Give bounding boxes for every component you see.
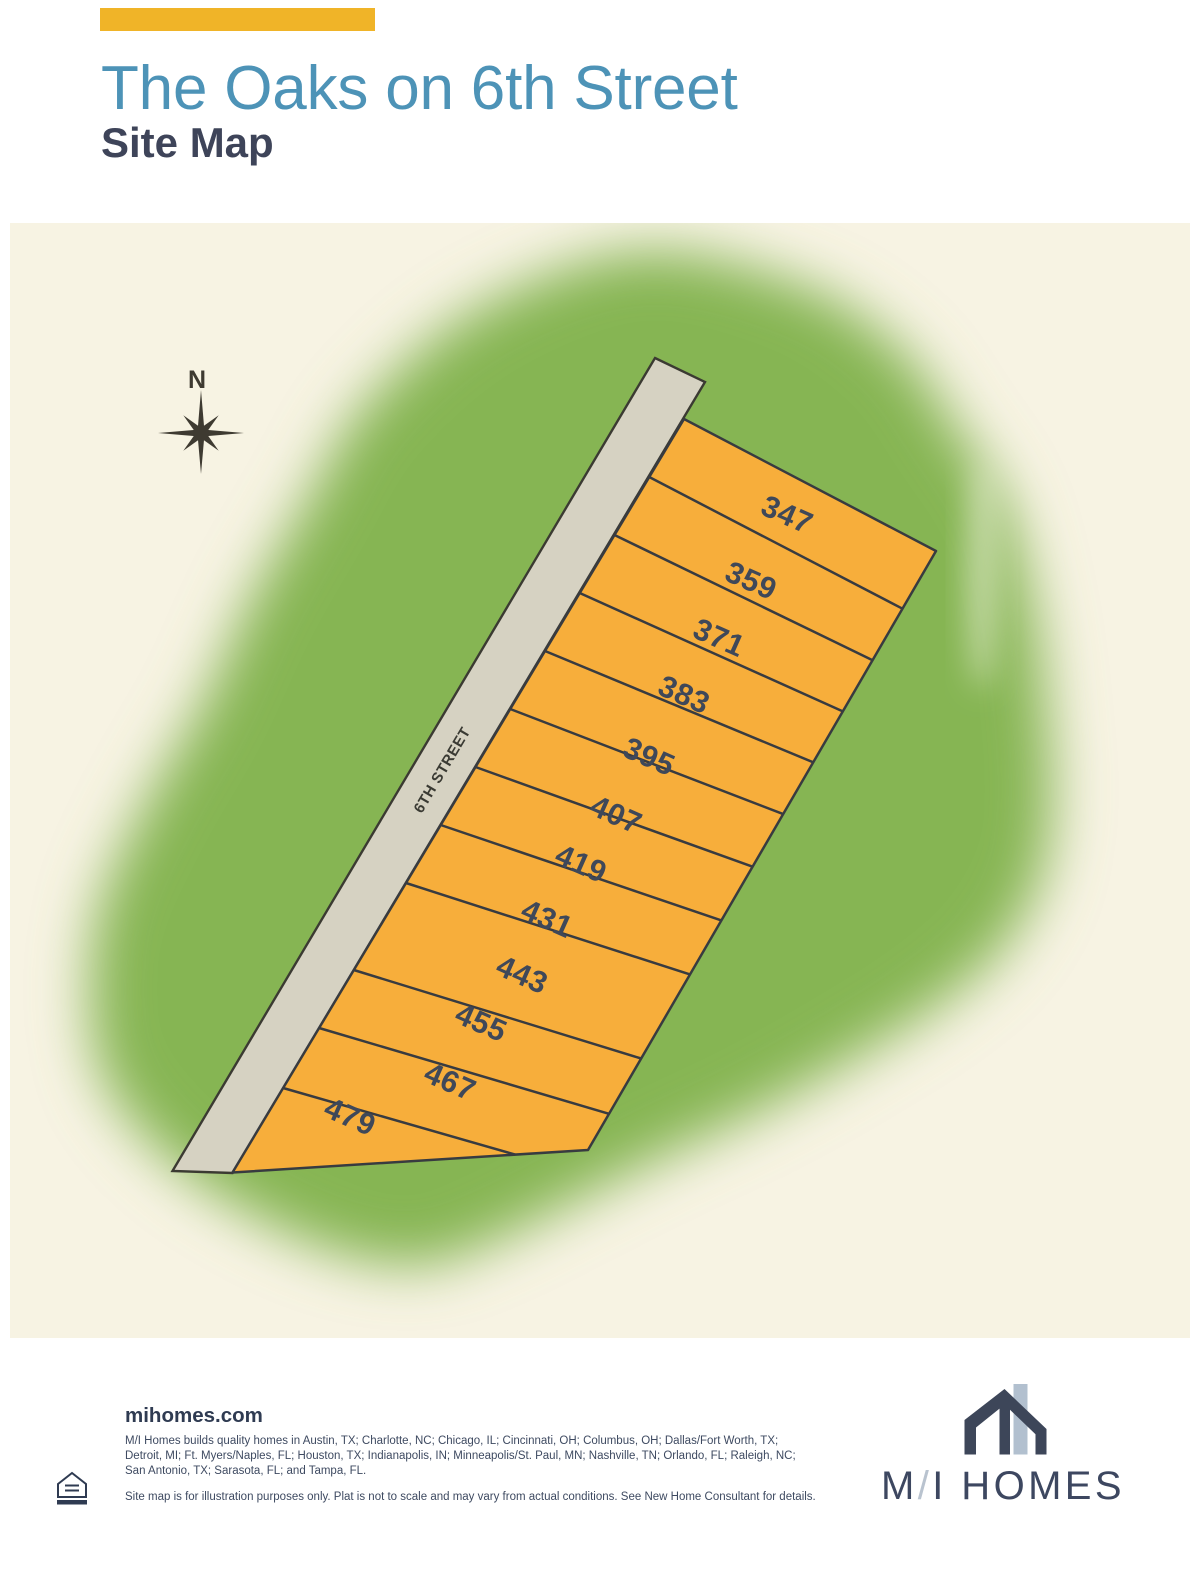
svg-text:N: N: [188, 366, 206, 394]
